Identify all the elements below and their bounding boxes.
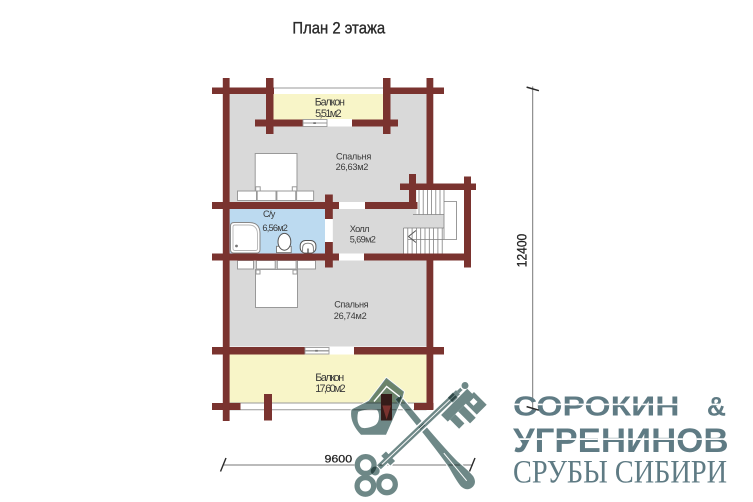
svg-text:26,63м2: 26,63м2 (336, 162, 369, 172)
svg-text:Спальня: Спальня (334, 299, 368, 309)
svg-text:12400: 12400 (515, 233, 530, 267)
svg-text:СРУБЫ СИБИРИ: СРУБЫ СИБИРИ (513, 455, 727, 491)
svg-text:С/у: С/у (263, 209, 276, 219)
svg-text:26,74м2: 26,74м2 (334, 311, 367, 321)
svg-text:Спальня: Спальня (336, 152, 371, 162)
svg-text:5,69м2: 5,69м2 (350, 235, 376, 245)
svg-text:Холл: Холл (350, 224, 370, 234)
svg-text:Балкон: Балкон (315, 97, 345, 109)
svg-text:План 2 этажа: План 2 этажа (292, 19, 385, 38)
svg-text:СОРОКИН: СОРОКИН (513, 390, 680, 421)
svg-text:17,60м2: 17,60м2 (315, 383, 346, 395)
svg-text:9600: 9600 (325, 454, 353, 466)
svg-text:5,51м2: 5,51м2 (315, 108, 342, 120)
svg-text:&: & (707, 391, 726, 421)
svg-text:6,56м2: 6,56м2 (262, 223, 288, 233)
